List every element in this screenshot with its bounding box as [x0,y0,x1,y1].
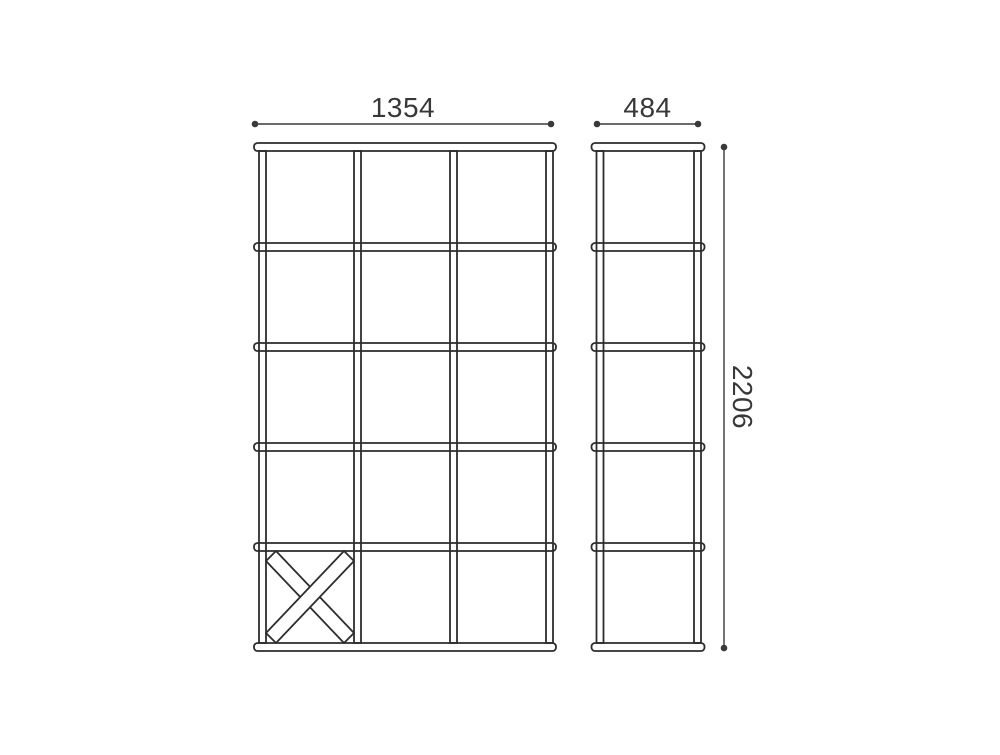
side-shelf-band [592,543,705,551]
depth-dimension-endpoint-right [695,121,702,128]
side-view [592,143,705,651]
front-shelf-band [254,543,556,551]
side-post-right [694,151,701,643]
height-dimension-endpoint-top [721,144,728,151]
height-dimension: 2206 [721,144,758,652]
depth-dimension: 484 [594,92,702,127]
side-shelf-band [592,143,705,151]
depth-dimension-endpoint-left [594,121,601,128]
width-dimension-endpoint-right [548,121,555,128]
height-dimension-label: 2206 [727,365,758,429]
side-shelf-band [592,243,705,251]
front-post-left [259,151,266,643]
front-post-mid1 [354,151,361,643]
cross-brace [266,551,354,643]
front-post-mid2 [450,151,457,643]
width-dimension: 1354 [252,92,555,127]
shelving-dimension-drawing: 1354 484 2206 [0,0,1000,755]
front-shelf-band [254,343,556,351]
depth-dimension-label: 484 [623,92,671,123]
side-shelf-band [592,343,705,351]
front-view [254,143,556,651]
front-shelf-band [254,243,556,251]
height-dimension-endpoint-bottom [721,645,728,652]
front-shelf-band [254,143,556,151]
front-shelf-band [254,443,556,451]
width-dimension-endpoint-left [252,121,259,128]
technical-drawing-canvas: 1354 484 2206 [0,0,1000,755]
width-dimension-label: 1354 [371,92,435,123]
front-shelf-band [254,643,556,651]
side-shelf-band [592,443,705,451]
side-post-left [597,151,604,643]
front-post-right [546,151,553,643]
side-shelf-band [592,643,705,651]
